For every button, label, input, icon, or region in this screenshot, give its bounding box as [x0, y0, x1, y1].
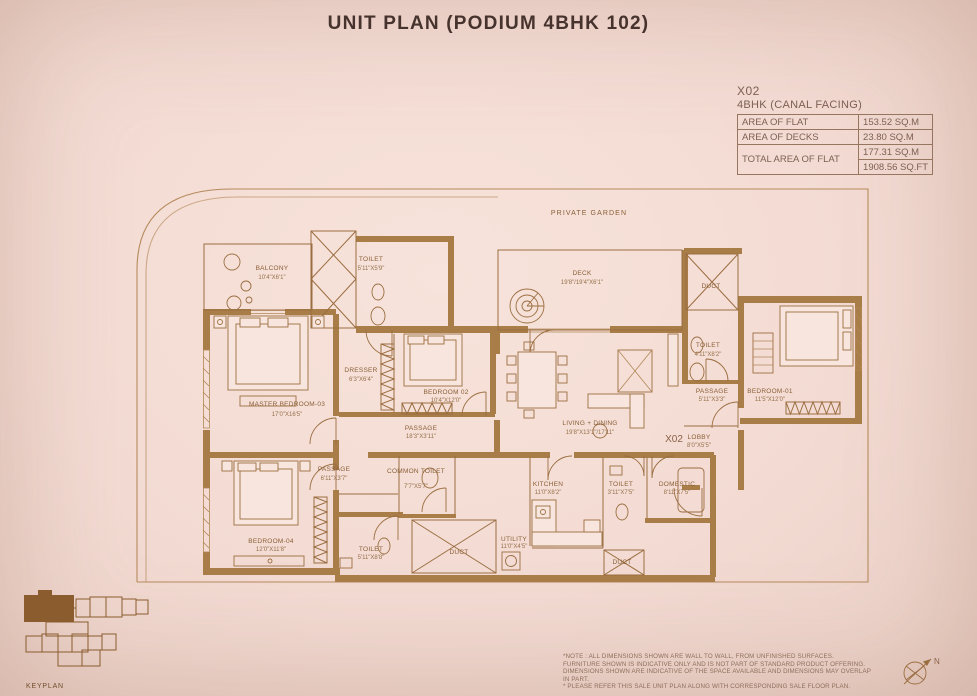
room-label-deck: DECK 19'8"/19'4"X6'1"	[561, 270, 603, 286]
svg-text:18'3"X3'11": 18'3"X3'11"	[406, 434, 436, 440]
note-line: * PLEASE REFER THIS SALE UNIT PLAN ALONG…	[563, 683, 873, 691]
room-label-toilet-bottom-left: TOILET 5'11"X8'8"	[358, 546, 385, 561]
svg-text:BEDROOM 02: BEDROOM 02	[423, 389, 468, 396]
room-label-bedroom-02: BEDROOM 02 10'4"X12'0"	[423, 389, 468, 404]
room-label-master-bedroom: MASTER BEDROOM-03 17'0"X16'5"	[249, 401, 325, 418]
north-compass-icon: N	[904, 657, 940, 684]
floor-plan-page: UNIT PLAN (PODIUM 4BHK 102) X02 4BHK (CA…	[0, 0, 977, 696]
svg-text:PASSAGE: PASSAGE	[318, 466, 351, 473]
svg-text:PASSAGE: PASSAGE	[696, 388, 729, 395]
svg-text:8'11"X7'5": 8'11"X7'5"	[664, 490, 691, 496]
svg-text:DUCT: DUCT	[701, 283, 720, 290]
svg-text:TOILET: TOILET	[696, 342, 720, 349]
svg-text:11'0"X8'2": 11'0"X8'2"	[535, 490, 562, 496]
svg-text:PRIVATE GARDEN: PRIVATE GARDEN	[551, 210, 627, 217]
svg-text:11'5"X12'0": 11'5"X12'0"	[755, 397, 785, 403]
svg-text:X02: X02	[665, 434, 683, 445]
svg-text:5'11"X5'9": 5'11"X5'9"	[358, 266, 385, 272]
svg-text:5'11"X3'3": 5'11"X3'3"	[699, 397, 726, 403]
svg-text:TOILET: TOILET	[359, 256, 383, 263]
svg-text:12'0"X11'8": 12'0"X11'8"	[256, 547, 286, 553]
svg-text:4'11"X8'2": 4'11"X8'2"	[695, 352, 722, 358]
keyplan-label: KEYPLAN	[26, 683, 64, 690]
svg-text:TOILET: TOILET	[609, 481, 633, 488]
svg-text:19'8"/19'4"X6'1": 19'8"/19'4"X6'1"	[561, 280, 603, 286]
svg-text:8'0"X5'5": 8'0"X5'5"	[687, 443, 711, 449]
room-label-duct-center: DUCT	[449, 549, 468, 556]
note-line: DIMENSIONS SHOWN ARE INDICATIVE OF THE S…	[563, 668, 873, 683]
svg-text:19'8"X13'1"/17'11": 19'8"X13'1"/17'11"	[566, 430, 614, 436]
floor-plan-drawing: PRIVATE GARDEN BALCONY 10'4"X6'1" TOILET…	[0, 0, 977, 696]
room-label-toilet-bottom-right: TOILET 3'11"X7'5"	[608, 481, 635, 496]
room-label-utility: UTILITY 11'0"X4'5"	[501, 536, 528, 550]
room-label-living-dining: LIVING + DINING 19'8"X13'1"/17'11"	[562, 420, 617, 436]
room-label-bedroom-01: BEDROOM-01 11'5"X12'0"	[747, 388, 793, 403]
room-label-common-toilet: COMMON TOILET 7'7"X5'7"	[387, 468, 445, 490]
svg-text:11'0"X4'5": 11'0"X4'5"	[501, 544, 528, 550]
svg-text:6'11"X3'7": 6'11"X3'7"	[321, 476, 348, 482]
room-label-duct-bottom-right: DUCT	[612, 559, 631, 566]
room-label-balcony: BALCONY 10'4"X6'1"	[256, 265, 289, 281]
svg-text:TOILET: TOILET	[359, 546, 383, 553]
svg-text:UTILITY: UTILITY	[501, 536, 527, 543]
room-label-private-garden: PRIVATE GARDEN	[551, 210, 627, 217]
plan-unit-code: X02	[665, 434, 683, 445]
room-label-kitchen: KITCHEN 11'0"X8'2"	[533, 481, 563, 496]
room-label-dresser: DRESSER 6'3"X6'4"	[344, 367, 377, 383]
svg-text:7'7"X5'7": 7'7"X5'7"	[404, 484, 428, 490]
room-label-bedroom-04: BEDROOM-04 12'0"X11'8"	[248, 538, 294, 553]
svg-text:DRESSER: DRESSER	[344, 367, 377, 374]
svg-text:BALCONY: BALCONY	[256, 265, 289, 272]
room-label-lobby: LOBBY 8'0"X5'5"	[687, 434, 711, 449]
note-line: FURNITURE SHOWN IS INDICATIVE ONLY AND I…	[563, 661, 873, 669]
svg-text:DUCT: DUCT	[612, 559, 631, 566]
svg-text:6'3"X6'4": 6'3"X6'4"	[349, 377, 373, 383]
svg-text:DOMESTIC: DOMESTIC	[659, 481, 695, 488]
note-line: *NOTE : ALL DIMENSIONS SHOWN ARE WALL TO…	[563, 653, 873, 661]
room-label-duct-top: DUCT	[701, 283, 720, 290]
svg-text:10'4"X12'0": 10'4"X12'0"	[431, 398, 462, 404]
svg-text:DUCT: DUCT	[449, 549, 468, 556]
svg-text:DECK: DECK	[572, 270, 591, 277]
svg-text:KITCHEN: KITCHEN	[533, 481, 563, 488]
disclaimer-notes: *NOTE : ALL DIMENSIONS SHOWN ARE WALL TO…	[563, 653, 873, 691]
svg-text:5'11"X8'8": 5'11"X8'8"	[358, 555, 385, 561]
svg-text:COMMON TOILET: COMMON TOILET	[387, 468, 445, 475]
north-label: N	[934, 657, 940, 666]
room-label-passage-bottom-left: PASSAGE 6'11"X3'7"	[318, 466, 351, 482]
svg-text:17'0"X16'5": 17'0"X16'5"	[272, 412, 303, 418]
svg-text:3'11"X7'5": 3'11"X7'5"	[608, 490, 635, 496]
room-label-toilet-top: TOILET 5'11"X5'9"	[358, 256, 385, 272]
svg-text:LOBBY: LOBBY	[688, 434, 711, 441]
svg-text:PASSAGE: PASSAGE	[405, 425, 438, 432]
svg-text:BEDROOM-01: BEDROOM-01	[747, 388, 793, 395]
room-label-passage-right: PASSAGE 5'11"X3'3"	[696, 388, 729, 403]
svg-text:MASTER BEDROOM-03: MASTER BEDROOM-03	[249, 401, 325, 408]
room-label-passage-main: PASSAGE 18'3"X3'11"	[405, 425, 438, 440]
room-label-toilet-right: TOILET 4'11"X8'2"	[695, 342, 722, 358]
svg-text:10'4"X6'1": 10'4"X6'1"	[258, 275, 285, 281]
svg-text:LIVING + DINING: LIVING + DINING	[562, 420, 617, 427]
keyplan: KEYPLAN	[24, 590, 148, 690]
svg-text:BEDROOM-04: BEDROOM-04	[248, 538, 294, 545]
